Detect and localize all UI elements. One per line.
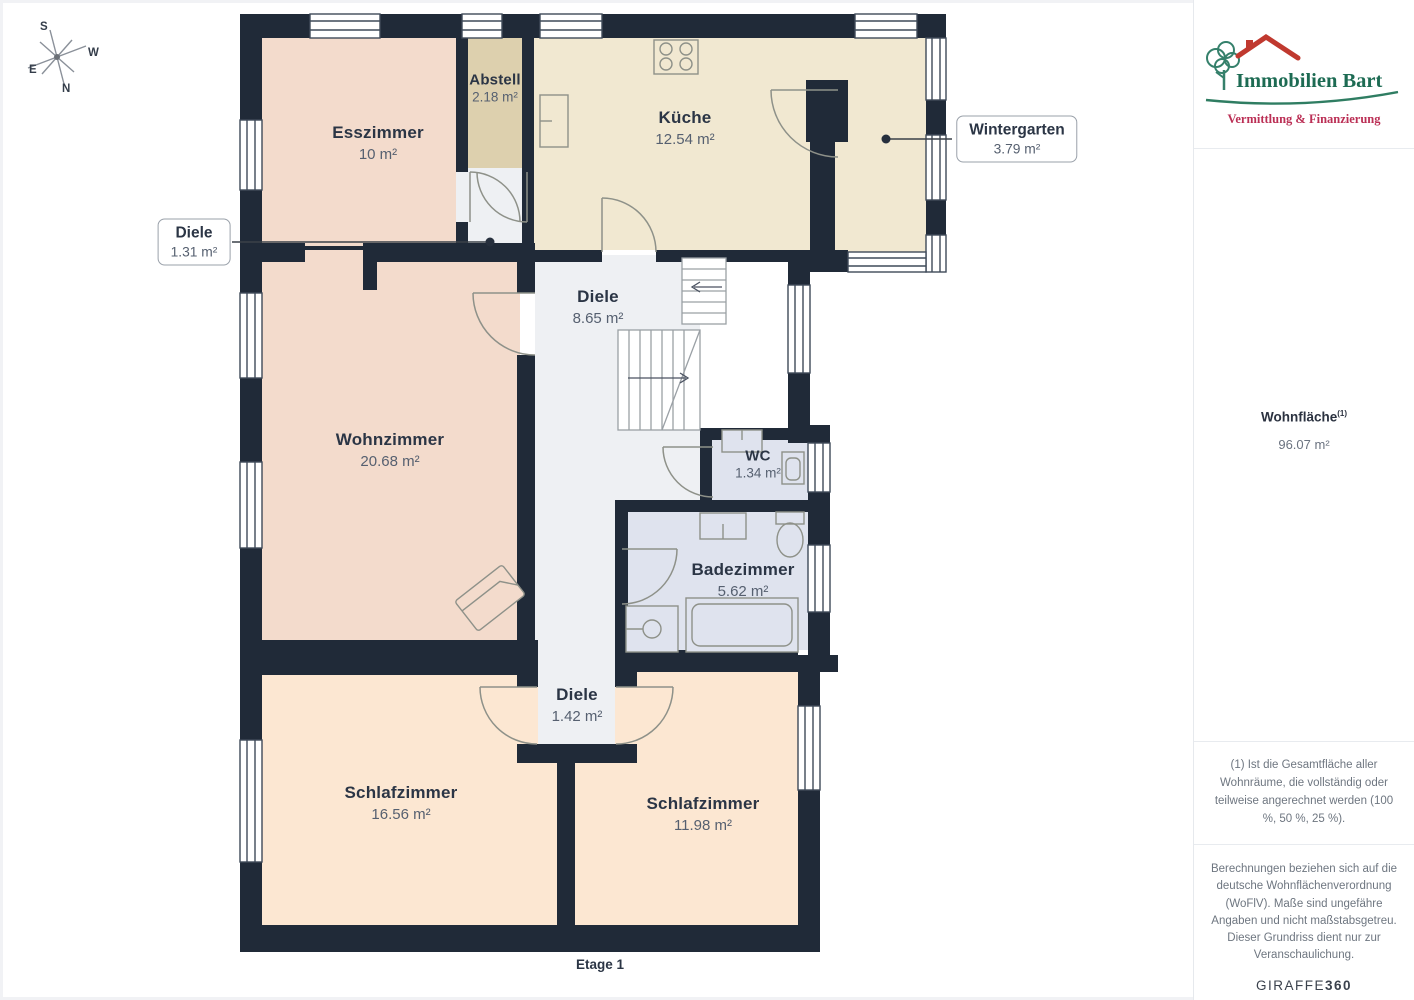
stove-icon [654,40,698,74]
giraffe360-logo-text: GIRAFFE [1256,978,1325,993]
giraffe360-logo: GIRAFFE360 [1256,978,1352,993]
window-wohnzimmer-2 [240,462,262,548]
window-wc [808,443,830,492]
living-area-footnote-ref: (1) [1337,409,1347,418]
window-diele [788,285,810,373]
kitchen-appliance-icon [540,95,568,147]
window-badezimmer [808,545,830,612]
window-schlafzimmer-links [240,740,262,862]
window-top-wintergarten [855,14,917,38]
room-abstell [468,38,522,168]
room-diele-klein-unten [538,653,615,748]
floorplan-canvas: Esszimmer10 m² Abstell2.18 m² Küche12.54… [0,0,1194,1000]
compass-rose-icon: S W E N [0,0,116,116]
compass-n: N [62,83,70,95]
window-top-2 [462,14,502,38]
logo-underline [1206,92,1398,104]
agency-tagline: Vermittlung & Finanzierung [1202,112,1406,127]
sidebar-main-section: Wohnfläche(1) 96.07 m² [1194,149,1414,742]
floor-label: Etage 1 [576,957,624,972]
callout-wintergarten: Wintergarten3.79 m² [956,116,1077,163]
living-area-summary: Wohnfläche(1) 96.07 m² [1194,409,1414,452]
compass-w: W [88,47,99,59]
window-wohnzimmer-1 [240,293,262,378]
footnote-text: (1) Ist die Gesamtfläche aller Wohnräume… [1194,757,1414,828]
room-esszimmer [262,38,456,255]
disclaimer-section: Berechnungen beziehen sich auf die deuts… [1194,845,1414,1000]
floorplan-page: Esszimmer10 m² Abstell2.18 m² Küche12.54… [0,0,1414,1000]
callout-diele: Diele1.31 m² [158,219,231,266]
wc-sink-icon [722,430,762,452]
bath-sink-icon [700,513,746,539]
window-top-1 [310,14,380,38]
giraffe360-logo-number: 360 [1325,978,1352,993]
wc-toilet-icon [782,452,804,484]
footnote-section: (1) Ist die Gesamtfläche aller Wohnräume… [1194,742,1414,845]
living-area-value: 96.07 m² [1194,437,1414,452]
sidebar: Immobilien Bart Vermittlung & Finanzieru… [1193,0,1414,1000]
room-schlafzimmer [262,672,798,925]
washbasin-icon [626,606,678,652]
window-top-3 [540,14,602,38]
disclaimer-text: Berechnungen beziehen sich auf die deuts… [1194,861,1414,965]
window-esszimmer [240,120,262,190]
bathtub-icon [686,598,798,652]
window-schlafzimmer-rechts [798,706,820,790]
compass-s: S [40,21,48,33]
tree-icon [1207,42,1239,90]
compass-e: E [29,64,37,76]
room-wintergarten [775,38,926,272]
agency-logo: Immobilien Bart Vermittlung & Finanzieru… [1194,0,1414,149]
agency-name: Immobilien Bart [1236,70,1382,93]
living-area-label: Wohnfläche [1261,410,1337,425]
